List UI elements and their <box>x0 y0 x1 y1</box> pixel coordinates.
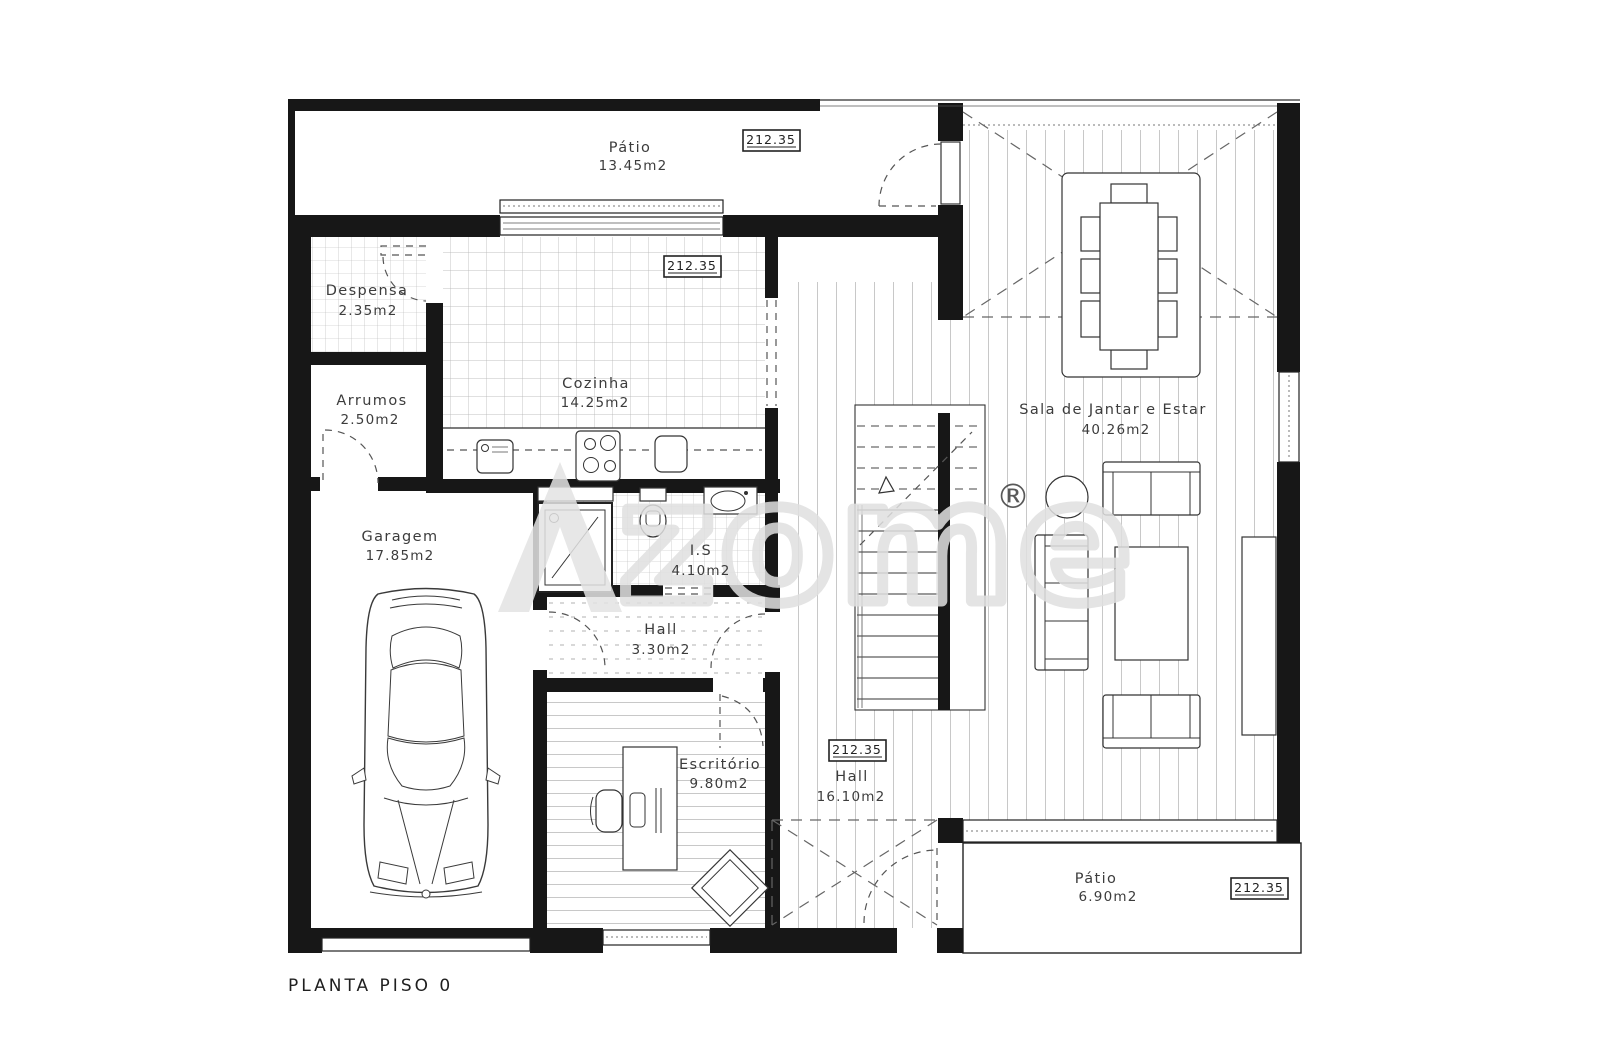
room-area-garagem: 17.85m2 <box>366 548 435 564</box>
garage-hall-door-arc <box>549 612 605 668</box>
room-label-patio-bottom: Pátio <box>1075 871 1118 887</box>
room-area-cozinha: 14.25m2 <box>561 395 630 411</box>
room-area-arrumos: 2.50m2 <box>341 412 400 428</box>
room-area-patio-top: 13.45m2 <box>599 158 668 174</box>
dining-chair <box>1081 259 1100 293</box>
dining-chair <box>1158 259 1177 293</box>
sideboard <box>1242 537 1276 735</box>
svg-text:212.35: 212.35 <box>746 132 796 147</box>
arrumos-door-arc <box>325 430 378 483</box>
room-area-hall-main: 16.10m2 <box>817 789 886 805</box>
room-label-sala: Sala de Jantar e Estar <box>1019 402 1206 418</box>
watermark-reg: ® <box>996 477 1030 517</box>
garage-door <box>322 938 530 951</box>
svg-text:212.35: 212.35 <box>832 742 882 757</box>
svg-text:212.35: 212.35 <box>1234 880 1284 895</box>
floor-plan-canvas: zome ® 212.35 212.35 212.35 212.35 Pátio… <box>0 0 1600 1062</box>
dining-chair <box>1081 301 1100 337</box>
room-label-arrumos: Arrumos <box>336 393 407 409</box>
room-area-despensa: 2.35m2 <box>339 303 398 319</box>
elevation-marker-patio-top: 212.35 <box>743 130 800 151</box>
room-area-patio-bottom: 6.90m2 <box>1079 889 1138 905</box>
room-label-escritorio: Escritório <box>679 757 761 773</box>
dining-chair <box>1111 184 1147 203</box>
despensa-right-wall <box>426 303 443 479</box>
room-label-hall-small: Hall <box>644 622 677 638</box>
elevation-marker-hall-main: 212.35 <box>829 740 886 761</box>
kitchen-window <box>500 217 723 235</box>
patio-top-wall <box>288 99 820 111</box>
right-outer-wall <box>1277 103 1300 372</box>
room-label-hall-main: Hall <box>835 769 868 785</box>
room-label-cozinha: Cozinha <box>562 376 630 392</box>
room-label-patio-top: Pátio <box>609 140 652 156</box>
dining-chair <box>1158 217 1177 251</box>
dining-chair <box>1111 350 1147 369</box>
room-area-is: 4.10m2 <box>672 563 731 579</box>
room-label-despensa: Despensa <box>326 283 409 299</box>
room-label-garagem: Garagem <box>361 529 438 545</box>
car <box>352 589 500 899</box>
dining-chair <box>1158 301 1177 337</box>
left-outer-wall <box>288 237 311 953</box>
office-chair <box>596 790 622 832</box>
patio-bottom-window <box>963 820 1277 842</box>
dining-table <box>1100 203 1158 350</box>
room-area-sala: 40.26m2 <box>1082 422 1151 438</box>
dining-chair <box>1081 217 1100 251</box>
entrance-door-leaf <box>941 142 960 204</box>
elevation-marker-cozinha: 212.35 <box>664 256 721 277</box>
elevation-marker-patio-bottom: 212.35 <box>1231 878 1288 899</box>
desk <box>623 747 677 870</box>
dining-set <box>1062 173 1200 377</box>
room-label-is: I.S <box>690 543 712 559</box>
floor-plan-page: zome ® 212.35 212.35 212.35 212.35 Pátio… <box>0 0 1600 1062</box>
room-area-hall-small: 3.30m2 <box>632 642 691 658</box>
plan-title: PLANTA PISO 0 <box>288 976 453 996</box>
escritorio-right-wall <box>765 692 780 928</box>
room-area-escritorio: 9.80m2 <box>690 776 749 792</box>
svg-text:212.35: 212.35 <box>667 258 717 273</box>
kitchen-sink <box>477 440 513 473</box>
